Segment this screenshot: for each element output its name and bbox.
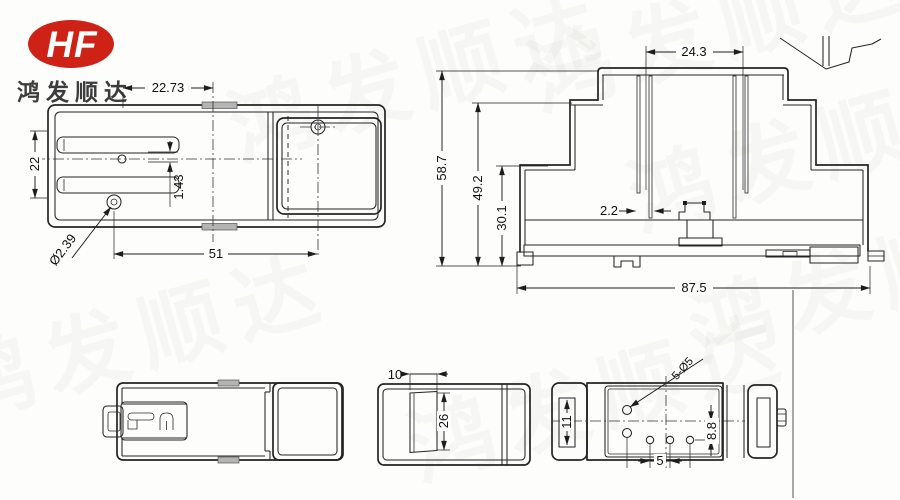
- bottom-view: [103, 380, 343, 463]
- mounting-hole-left: [107, 195, 121, 209]
- dim-slot-height: 22: [27, 131, 47, 198]
- svg-text:8.8: 8.8: [704, 422, 719, 440]
- callout-hole-diameter: Ø2.39: [46, 207, 111, 268]
- dim-upper-height: 49.2: [470, 103, 572, 266]
- dim-pin-offset: 1.43: [148, 141, 186, 207]
- dim-cover-width: 10: [388, 367, 448, 392]
- svg-text:2.2: 2.2: [600, 203, 618, 218]
- svg-text:87.5: 87.5: [681, 280, 706, 295]
- technical-drawing: 鸿发顺达 鸿发顺达 鸿发顺达 鸿发顺达 鸿发顺达 鸿发顺达 HF 鸿发顺达: [0, 0, 900, 500]
- svg-text:24.3: 24.3: [681, 44, 706, 59]
- svg-text:11: 11: [559, 415, 574, 429]
- dim-slot-span: 22.73: [123, 80, 213, 108]
- svg-text:58.7: 58.7: [434, 155, 449, 180]
- bottom-view-cover: [273, 383, 342, 460]
- edge-tab-bottom: [218, 457, 239, 463]
- edge-tab-bottom: [202, 224, 237, 231]
- logo-text: HF: [46, 24, 98, 65]
- top-view-slots: [57, 137, 179, 193]
- svg-text:49.2: 49.2: [470, 175, 485, 200]
- company-name: 鸿发顺达: [17, 79, 133, 105]
- svg-text:鸿发顺达: 鸿发顺达: [0, 239, 342, 437]
- svg-text:22: 22: [27, 157, 42, 171]
- svg-text:5: 5: [656, 453, 663, 468]
- bottom-view-outline: [117, 383, 343, 460]
- svg-text:22.73: 22.73: [152, 80, 185, 95]
- edge-tab-top: [202, 102, 237, 109]
- svg-text:1.43: 1.43: [171, 174, 186, 199]
- edge-tab-top: [218, 380, 239, 386]
- bottom-view-inner: [122, 383, 270, 460]
- svg-text:51: 51: [209, 246, 223, 261]
- drawing-canvas: 鸿发顺达 鸿发顺达 鸿发顺达 鸿发顺达 鸿发顺达 鸿发顺达 HF 鸿发顺达: [0, 0, 900, 500]
- logo: HF 鸿发顺达: [17, 20, 133, 105]
- svg-text:30.1: 30.1: [494, 205, 509, 230]
- dim-lower-height: 30.1: [494, 166, 548, 266]
- svg-text:10: 10: [388, 367, 402, 382]
- svg-text:26: 26: [436, 414, 451, 428]
- din-rail-latch: [103, 402, 187, 440]
- svg-text:Ø2.39: Ø2.39: [46, 231, 79, 268]
